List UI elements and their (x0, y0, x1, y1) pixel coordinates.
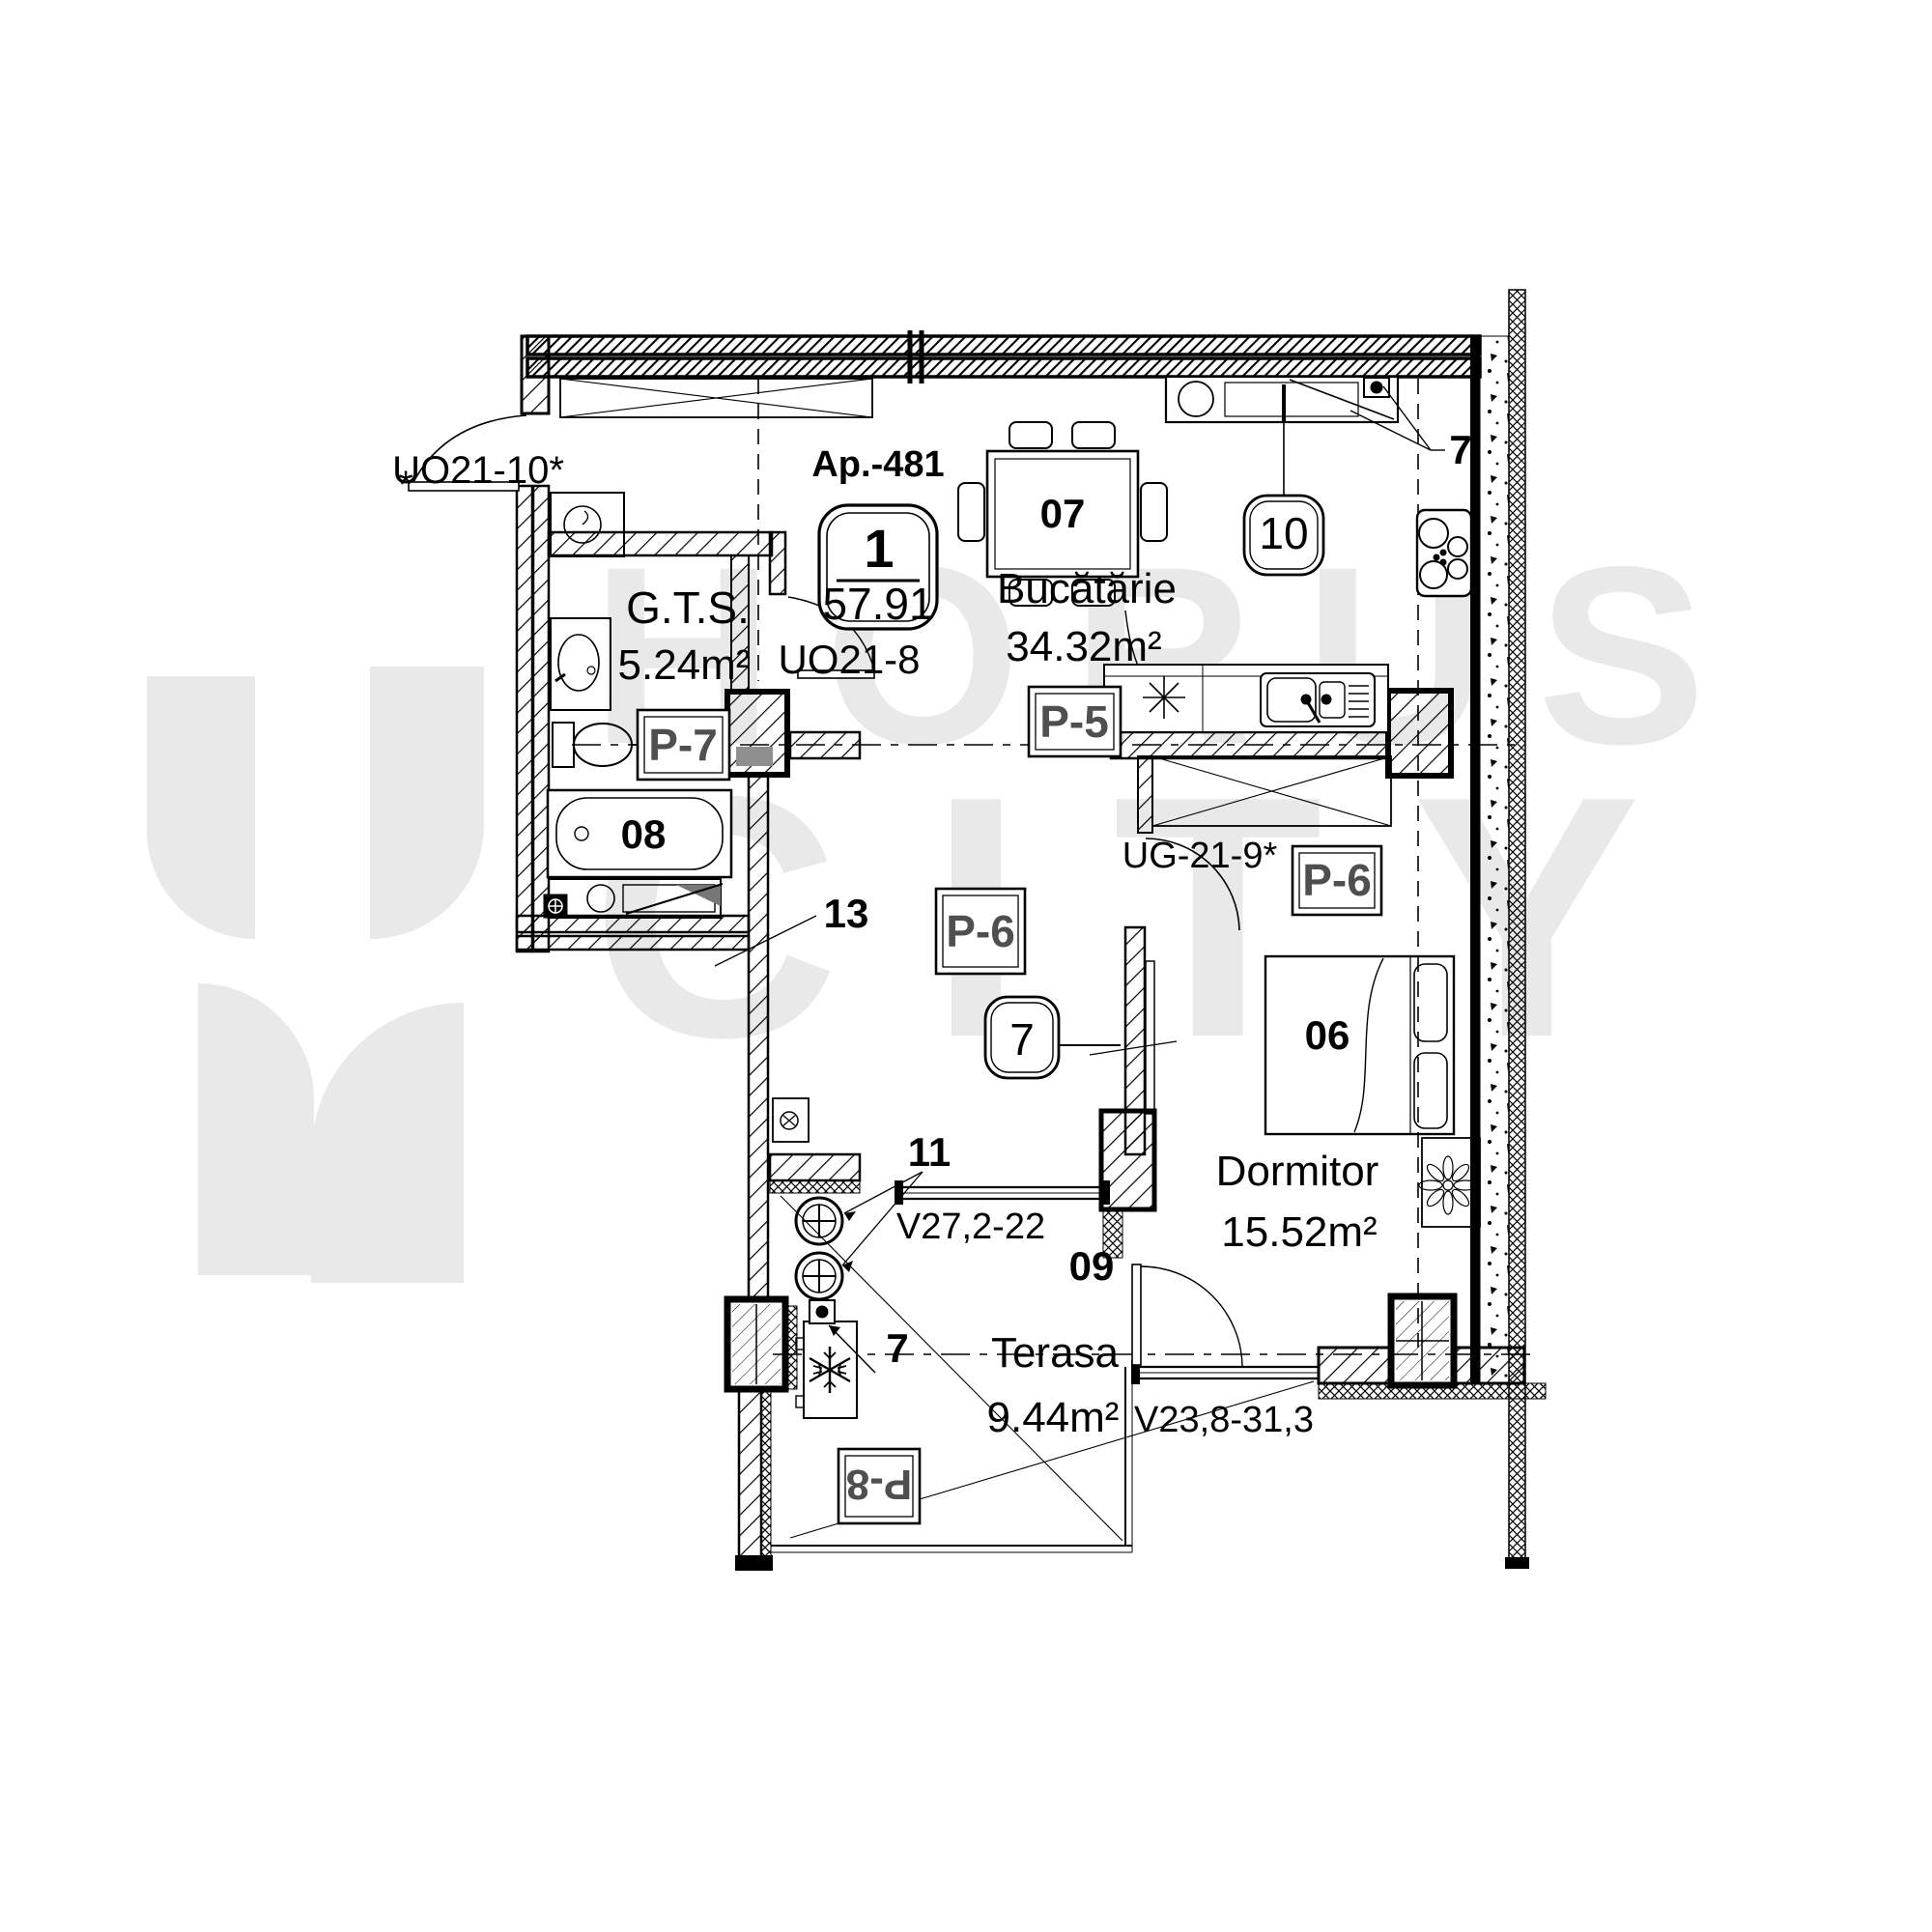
floor-plan-page: HORUS CITY (0, 0, 1932, 1932)
room-name-kitchen: Bucătărie (997, 565, 1177, 612)
hall-door-code: UO21-8 (778, 637, 920, 682)
bedroom-door-code: UG-21-9* (1122, 836, 1278, 876)
badge-p7: P-7 (632, 710, 729, 780)
badge-p8-rotated: P-8 (838, 1449, 920, 1523)
vent-pipe-icon (796, 1253, 842, 1299)
bed-icon (1265, 956, 1454, 1134)
kitchen-sink-icon (1261, 673, 1375, 726)
top-wall-band (527, 358, 1480, 377)
right-wall-stipple (1480, 336, 1509, 1383)
tv-panel (1146, 961, 1154, 1114)
badge-7-label: 7 (1009, 1014, 1035, 1065)
entry-closet (560, 379, 872, 417)
room-name-terrace: Terasa (991, 1329, 1120, 1377)
blanket-line (1354, 958, 1383, 1132)
sink-icon (551, 618, 611, 710)
apartment-total-area: 57.91 (822, 579, 933, 629)
drain-box-icon (544, 895, 567, 918)
ac-unit-icon (796, 1321, 857, 1418)
hall-window-code: V27,2-22 (896, 1207, 1045, 1247)
pillow-icon (1414, 1053, 1447, 1128)
terrace-west-wall (739, 1391, 761, 1568)
terrace-window-code: V23,8-31,3 (1134, 1400, 1314, 1440)
plant-icon (1419, 1156, 1477, 1214)
laundry-unit-icon (549, 879, 723, 918)
room-area-terrace: 9.44m² (987, 1394, 1120, 1441)
badge-p5: P-5 (1029, 687, 1121, 756)
badge-p6-bedroom-label: P-6 (1302, 855, 1372, 905)
badge-p6-bedroom: P-6 (1293, 846, 1381, 915)
wardrobe (1152, 756, 1391, 826)
room-area-bedroom: 15.52m² (1221, 1208, 1377, 1256)
entry-door-code: UO21-10* (392, 449, 564, 492)
stove-icon (1417, 510, 1471, 596)
apartment-unit-number: 1 (864, 518, 894, 579)
chair-icon (958, 483, 984, 541)
sensor-box-icon (810, 1300, 835, 1323)
top-wall-band (527, 336, 1480, 355)
badge-p6-hall: P-6 (936, 889, 1025, 974)
tag-vents-11: 11 (908, 1129, 951, 1175)
wall-pillar (1388, 691, 1451, 776)
tag-corridor-13: 13 (824, 891, 869, 936)
floor-plan-drawing: P-7 P-5 P-6 P-6 P-8 (0, 0, 1932, 1932)
badge-p6-hall-label: P-6 (946, 906, 1015, 956)
hall-window-v27 (895, 1180, 1110, 1205)
corridor-west-wall (749, 775, 768, 1299)
badge-10-label: 10 (1259, 508, 1308, 558)
entry-door-asterisk: * (398, 464, 413, 506)
tag-dining-07: 07 (1040, 491, 1086, 536)
terrace-door (1132, 1264, 1242, 1366)
terrace-window-v23 (1131, 1360, 1319, 1384)
badge-p8-label: P-8 (846, 1461, 912, 1508)
room-name-bedroom: Dormitor (1216, 1148, 1379, 1195)
pillow-icon (1414, 964, 1447, 1041)
room-area-gts: 5.24m² (618, 641, 751, 689)
vent-pipe-icon (796, 1198, 842, 1244)
bathroom-top-wall (549, 532, 772, 555)
room-name-gts: G.T.S. (626, 582, 750, 633)
tag-bathtub-08: 08 (621, 811, 667, 857)
left-wall (517, 486, 532, 952)
left-wall (533, 486, 549, 952)
chair-icon (1072, 422, 1115, 448)
apartment-label: Ap.-481 (811, 444, 944, 485)
hall-bottom-wall (770, 1154, 860, 1180)
chair-icon (1009, 422, 1052, 448)
badge-circle-7: 7 (985, 997, 1177, 1078)
junction-box-icon (773, 1098, 809, 1142)
apartment-badge: 1 57.91 (819, 505, 937, 629)
tag-bed-06: 06 (1305, 1012, 1350, 1058)
tag-terrace-7: 7 (886, 1325, 908, 1371)
badge-p5-label: P-5 (1039, 696, 1109, 747)
room-area-kitchen: 34.32m² (1006, 623, 1161, 670)
badge-p7-label: P-7 (648, 720, 718, 770)
tag-kitchen-corner-7: 7 (1449, 427, 1471, 472)
chair-icon (1141, 483, 1167, 541)
tag-hall-09: 09 (1069, 1243, 1115, 1289)
top-wall-end (522, 336, 549, 413)
